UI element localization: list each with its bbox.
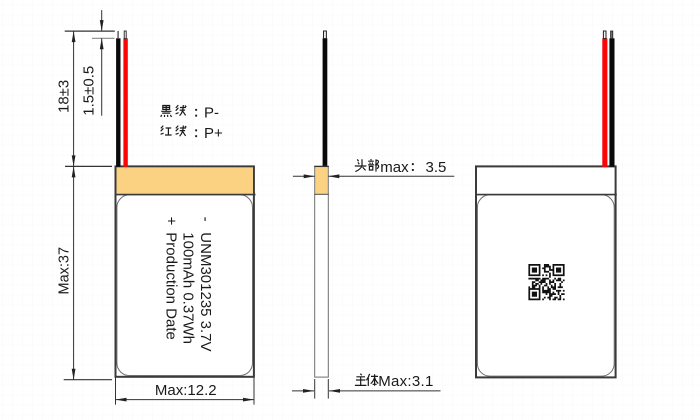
svg-text:1.5±0.5: 1.5±0.5 (80, 66, 97, 116)
svg-text:+Production Date: +Production Date (163, 217, 180, 340)
svg-text:P-: P- (204, 104, 219, 121)
svg-text:-UNM301235 3.7V: -UNM301235 3.7V (197, 217, 214, 352)
svg-text:Max:12.2: Max:12.2 (155, 382, 217, 399)
svg-text:max: max (380, 159, 409, 176)
svg-text:Max:37: Max:37 (56, 247, 72, 295)
svg-text:Max:3.1: Max:3.1 (378, 373, 433, 390)
svg-text:P+: P+ (204, 125, 223, 142)
svg-text:18±3: 18±3 (55, 80, 72, 113)
svg-text:3.5: 3.5 (426, 159, 447, 176)
svg-text:100mAh 0.37Wh: 100mAh 0.37Wh (179, 232, 196, 344)
